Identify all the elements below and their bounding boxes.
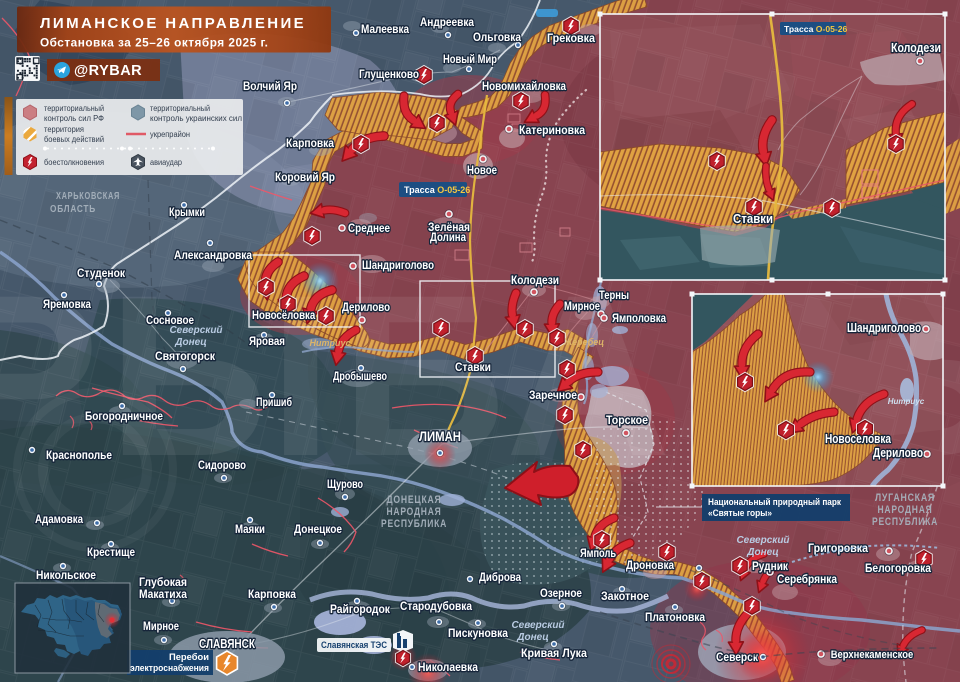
svg-text:Донецкое: Донецкое [294, 522, 342, 536]
svg-text:Ставки: Ставки [455, 360, 491, 374]
svg-text:Дерилово: Дерилово [873, 446, 923, 460]
svg-text:контроль украинских сил: контроль украинских сил [150, 114, 242, 123]
svg-text:НАРОДНАЯ: НАРОДНАЯ [878, 504, 933, 516]
svg-text:Макатиха: Макатиха [139, 587, 187, 601]
svg-text:Маяки: Маяки [235, 522, 265, 536]
svg-text:Стародубовка: Стародубовка [400, 599, 472, 613]
svg-text:Сидорово: Сидорово [198, 458, 246, 472]
svg-text:ЛИМАНСКОЕ НАПРАВЛЕНИЕ: ЛИМАНСКОЕ НАПРАВЛЕНИЕ [40, 15, 306, 32]
svg-text:Донец: Донец [174, 337, 206, 348]
svg-text:Северск: Северск [716, 650, 759, 664]
svg-text:Яремовка: Яремовка [43, 297, 91, 311]
svg-text:Крымки: Крымки [169, 205, 205, 219]
svg-text:Райгородок: Райгородок [330, 602, 391, 616]
svg-text:Дробышево: Дробышево [333, 369, 387, 383]
svg-text:Заречное: Заречное [529, 388, 577, 402]
svg-text:Долина: Долина [430, 230, 466, 244]
svg-text:Северский: Северский [511, 620, 564, 631]
svg-text:Северский: Северский [736, 535, 789, 546]
svg-text:Трасса О-05-26: Трасса О-05-26 [404, 185, 470, 195]
svg-text:боестолкновения: боестолкновения [44, 158, 104, 167]
svg-text:Перебои: Перебои [169, 652, 209, 663]
svg-text:«Святые горы»: «Святые горы» [708, 508, 772, 518]
svg-text:Шандриголово: Шандриголово [362, 258, 434, 272]
svg-text:Платоновка: Платоновка [645, 610, 705, 624]
svg-text:Ямполовка: Ямполовка [612, 311, 666, 325]
svg-text:Белогоровка: Белогоровка [865, 561, 931, 575]
svg-text:Мирное: Мирное [143, 619, 179, 633]
svg-text:Новый Мир: Новый Мир [443, 52, 497, 66]
svg-text:Адамовка: Адамовка [35, 512, 83, 526]
svg-text:Жеребец: Жеребец [563, 337, 604, 347]
svg-text:ЛИМАН: ЛИМАН [419, 429, 461, 444]
svg-text:территориальный: территориальный [44, 104, 104, 113]
svg-text:Щурово: Щурово [327, 477, 363, 491]
svg-text:Обстановка за 25–26 октября 20: Обстановка за 25–26 октября 2025 г. [40, 36, 268, 50]
svg-text:Дерилово: Дерилово [342, 300, 390, 314]
svg-text:Донец: Донец [516, 632, 548, 643]
svg-text:ЛУГАНСКАЯ: ЛУГАНСКАЯ [875, 492, 935, 504]
svg-text:Волчий Яр: Волчий Яр [243, 79, 297, 93]
svg-text:авиаудар: авиаудар [150, 158, 183, 167]
svg-text:Закотное: Закотное [601, 589, 649, 603]
svg-text:Ямполь: Ямполь [580, 546, 616, 560]
svg-text:Богородничное: Богородничное [85, 409, 163, 423]
svg-text:Пришиб: Пришиб [256, 395, 292, 409]
svg-text:Крестище: Крестище [87, 545, 135, 559]
svg-text:@RYBAR: @RYBAR [74, 63, 142, 79]
svg-text:СЛАВЯНСК: СЛАВЯНСК [199, 636, 255, 651]
svg-text:Малеевка: Малеевка [361, 22, 409, 36]
svg-text:Карповка: Карповка [286, 136, 334, 150]
svg-text:Торское: Торское [606, 413, 648, 427]
svg-text:Пискуновка: Пискуновка [448, 626, 508, 640]
svg-text:Колодези: Колодези [891, 41, 941, 55]
svg-text:Трасса О-05-26: Трасса О-05-26 [784, 24, 848, 34]
svg-text:боевых действий: боевых действий [44, 135, 104, 144]
svg-text:РЕСПУБЛИКА: РЕСПУБЛИКА [872, 516, 938, 528]
svg-text:Студенок: Студенок [77, 266, 126, 280]
svg-text:Яровая: Яровая [249, 334, 285, 348]
svg-text:Озерное: Озерное [540, 586, 582, 600]
svg-text:территориальный: территориальный [150, 104, 210, 113]
svg-text:территория: территория [44, 125, 84, 134]
svg-text:укрепрайон: укрепрайон [150, 130, 190, 139]
svg-text:Национальный природный парк: Национальный природный парк [708, 497, 841, 507]
svg-text:ДОНЕЦКАЯ: ДОНЕЦКАЯ [387, 494, 442, 506]
svg-text:Рудник: Рудник [752, 559, 789, 573]
svg-text:Николаевка: Николаевка [418, 660, 478, 674]
svg-text:Ольговка: Ольговка [473, 30, 521, 44]
svg-text:Новое: Новое [467, 163, 497, 177]
svg-text:Верхнекаменское: Верхнекаменское [831, 649, 914, 661]
svg-text:Новомихайловка: Новомихайловка [482, 79, 566, 93]
svg-text:Катериновка: Катериновка [519, 123, 585, 137]
svg-text:Андреевка: Андреевка [420, 15, 474, 29]
svg-text:Северский: Северский [169, 325, 222, 336]
svg-text:Славянская ТЭС: Славянская ТЭС [321, 640, 387, 650]
svg-text:Серебрянка: Серебрянка [777, 572, 837, 586]
svg-text:Кривая Лука: Кривая Лука [521, 646, 587, 660]
svg-text:контроль сил РФ: контроль сил РФ [44, 114, 104, 123]
svg-text:Краснополье: Краснополье [46, 448, 112, 462]
svg-text:Грековка: Грековка [547, 31, 595, 45]
svg-text:Шандриголово: Шандриголово [847, 321, 921, 335]
svg-text:Александровка: Александровка [174, 248, 252, 262]
svg-text:Дроновка: Дроновка [626, 558, 674, 572]
svg-text:Глущенково: Глущенково [359, 67, 419, 81]
svg-text:ОБЛАСТЬ: ОБЛАСТЬ [50, 203, 96, 215]
svg-text:НАРОДНАЯ: НАРОДНАЯ [387, 506, 442, 518]
svg-text:Карповка: Карповка [248, 587, 296, 601]
svg-text:Донец: Донец [746, 547, 778, 558]
svg-text:Новосёловка: Новосёловка [252, 310, 316, 322]
svg-text:Коровий Яр: Коровий Яр [275, 170, 335, 184]
svg-text:Святогорск: Святогорск [155, 349, 216, 363]
svg-text:РЕСПУБЛИКА: РЕСПУБЛИКА [381, 518, 447, 530]
svg-text:Диброва: Диброва [479, 570, 521, 584]
svg-text:ХАРЬКОВСКАЯ: ХАРЬКОВСКАЯ [56, 190, 120, 202]
svg-text:Мирное: Мирное [564, 299, 600, 313]
svg-text:Никольское: Никольское [36, 568, 96, 582]
svg-text:Нитриус: Нитриус [309, 338, 350, 348]
svg-text:Нитриус: Нитриус [888, 397, 925, 406]
svg-text:Ставки: Ставки [733, 212, 773, 226]
svg-text:Среднее: Среднее [348, 221, 390, 235]
svg-text:электроснабжения: электроснабжения [130, 663, 209, 674]
svg-text:Терны: Терны [599, 288, 629, 302]
svg-text:Колодези: Колодези [511, 273, 559, 287]
svg-text:Новоселовка: Новоселовка [825, 432, 892, 446]
